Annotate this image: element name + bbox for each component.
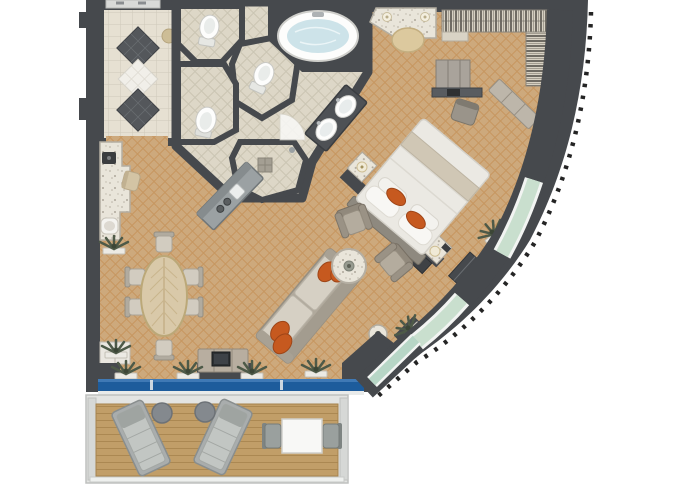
door-mullion bbox=[280, 380, 283, 390]
floor-plan-stage: Luxury ship suite floor plan, top-down 3… bbox=[0, 0, 680, 486]
tub-faucet bbox=[312, 12, 324, 17]
balcony-side-table bbox=[195, 402, 215, 422]
floor-plan bbox=[0, 0, 680, 486]
shower-head bbox=[289, 147, 295, 153]
coffee-table bbox=[332, 249, 366, 283]
entry-door-handle bbox=[116, 2, 124, 5]
entry-door bbox=[106, 0, 160, 8]
balcony-side-table bbox=[152, 403, 172, 423]
shower-drain bbox=[258, 158, 272, 172]
office-cabinet bbox=[436, 60, 470, 88]
entry-hall bbox=[96, 0, 180, 148]
entry-door-handle bbox=[138, 2, 146, 5]
balcony bbox=[86, 395, 348, 483]
corridor-pilaster bbox=[79, 98, 87, 120]
balcony-chair bbox=[262, 423, 281, 449]
dining-chair bbox=[154, 340, 174, 360]
corridor-pilaster bbox=[79, 12, 87, 28]
door-mullion bbox=[150, 380, 153, 390]
balcony-rail-bottom bbox=[90, 477, 344, 482]
balcony-chair bbox=[323, 423, 342, 449]
closet-shelf bbox=[442, 32, 468, 41]
balcony-table bbox=[282, 419, 322, 453]
dining-chair bbox=[154, 232, 174, 252]
laptop bbox=[447, 89, 460, 96]
vanity-stool bbox=[392, 28, 424, 52]
balcony-rail-left bbox=[88, 398, 96, 480]
whirlpool-tub bbox=[278, 11, 358, 61]
